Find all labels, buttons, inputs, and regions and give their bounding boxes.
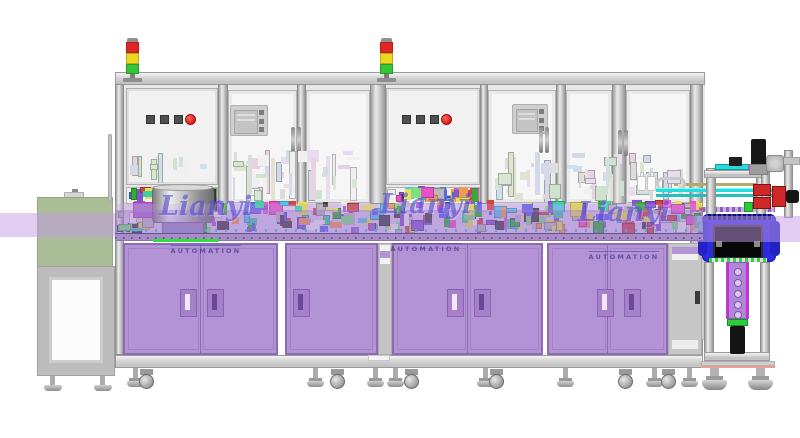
handle-slot	[185, 294, 190, 310]
component-block	[338, 165, 351, 170]
handle-slot	[452, 294, 457, 310]
cabinet-handle	[474, 289, 491, 317]
bottle	[647, 176, 656, 191]
panel-button	[160, 115, 169, 124]
gearbox-red	[753, 197, 771, 209]
component-block	[585, 178, 597, 184]
vision-bracket	[726, 262, 749, 319]
component-block	[326, 156, 330, 200]
component-block	[514, 193, 523, 200]
handle-slot	[629, 294, 634, 310]
conveyor-band-right	[693, 216, 800, 242]
tunnel-unit-sensor	[72, 189, 78, 192]
joint-stripe-purple	[380, 251, 390, 258]
component-block	[411, 188, 421, 198]
cable-conduit	[108, 134, 112, 202]
component-block	[472, 189, 478, 202]
component-block	[608, 167, 610, 183]
stack-light-yellow	[126, 53, 139, 64]
leveling-foot-base	[307, 381, 324, 387]
bracket-hole	[734, 279, 742, 287]
panel-button	[174, 115, 183, 124]
bracket-edge-right	[746, 263, 748, 318]
bottle-neck	[650, 172, 654, 177]
hmi-key	[259, 127, 264, 132]
side-stripe-bottom	[672, 340, 698, 349]
component-block	[579, 176, 582, 189]
bottle-neck	[640, 172, 644, 177]
component-block	[535, 152, 540, 195]
component-block	[498, 173, 513, 184]
stand-post-right	[760, 262, 770, 362]
leveling-foot-base	[367, 381, 384, 387]
left-stand-panel	[49, 277, 103, 363]
component-block	[343, 151, 354, 154]
stack-light-base	[123, 78, 142, 82]
frame-column	[370, 84, 386, 204]
green-block	[744, 202, 753, 212]
component-block	[258, 155, 269, 167]
motor-flange	[766, 155, 784, 172]
cabinet-handle	[293, 289, 310, 317]
component-block	[298, 151, 307, 161]
component-block	[620, 181, 624, 196]
cabinet-handle	[207, 289, 224, 317]
stand-post-left	[704, 262, 714, 362]
caster-wheel	[489, 374, 504, 389]
machinery-clutter	[387, 186, 479, 202]
component-block	[396, 195, 402, 202]
hmi-panel	[230, 105, 268, 136]
component-block	[233, 161, 244, 168]
handle-slot	[298, 294, 303, 310]
base-joint-notch	[368, 355, 390, 361]
component-block	[597, 186, 609, 195]
component-block	[549, 163, 558, 172]
coupler-cylinder	[786, 190, 799, 203]
hmi-key	[259, 110, 264, 115]
gearbox-red-side	[772, 186, 786, 207]
bracket-edge-left	[727, 263, 729, 318]
stack-light-green	[126, 64, 139, 74]
bracket-hole	[734, 311, 742, 319]
component-block	[131, 188, 137, 200]
leveling-foot-base	[681, 381, 698, 387]
automation-line-render: Lianyi AUTOMATION Lianyi AUTOMATION Lian…	[0, 0, 800, 438]
camera-mount-green	[727, 319, 748, 326]
component-block	[284, 184, 291, 188]
stack-light-red	[126, 42, 139, 53]
component-block	[419, 187, 433, 199]
green-status-line	[153, 239, 219, 242]
component-block	[520, 172, 531, 181]
station-foot-base	[702, 380, 727, 390]
enclosure-door	[386, 88, 480, 185]
leveling-foot-base	[94, 385, 112, 391]
machinery-clutter	[130, 152, 214, 183]
component-block	[531, 163, 534, 167]
bottle	[637, 176, 646, 191]
chamber-bottom-strip	[709, 258, 767, 262]
z-axis-motor	[751, 139, 766, 167]
component-block	[610, 174, 613, 201]
component-block	[444, 190, 447, 201]
caster-wheel	[330, 374, 345, 389]
conveyor-band-left	[0, 213, 115, 237]
panel-button	[430, 115, 439, 124]
hmi-screen	[234, 110, 258, 134]
cart-latch	[695, 291, 700, 304]
leveling-foot-base	[44, 385, 62, 391]
component-block	[643, 155, 651, 164]
station-foot-base	[748, 380, 773, 390]
cabinet-door-split	[200, 245, 201, 353]
caster-wheel	[661, 374, 676, 389]
component-block	[352, 179, 357, 188]
stack-light-base	[377, 78, 396, 82]
stack-light-yellow	[380, 53, 393, 64]
base-skirt	[115, 355, 703, 368]
panel-button	[402, 115, 411, 124]
caster-wheel	[139, 374, 154, 389]
bracket-hole	[734, 290, 742, 298]
bowl-feeder-rim	[153, 184, 213, 191]
component-block	[549, 184, 561, 199]
machinery-clutter	[232, 150, 364, 202]
hmi-key	[539, 118, 544, 123]
component-block	[271, 158, 275, 201]
cabinet-group	[285, 243, 378, 355]
handle-slot	[212, 294, 217, 310]
camera-cylinder	[730, 326, 745, 354]
component-block	[541, 163, 545, 174]
bracket-hole	[734, 301, 742, 309]
component-block	[387, 189, 396, 195]
component-block	[151, 159, 158, 180]
machinery-clutter	[570, 165, 610, 202]
cabinet-group	[123, 243, 278, 355]
component-block	[311, 158, 316, 200]
component-block	[577, 166, 582, 172]
component-block	[138, 156, 142, 177]
component-block	[276, 162, 282, 182]
panel-button	[416, 115, 425, 124]
component-block	[200, 164, 207, 169]
gearbox-red	[753, 184, 771, 196]
component-block	[248, 155, 252, 196]
leveling-foot-base	[557, 381, 574, 387]
estop-button	[441, 114, 452, 125]
cabinet-handle	[624, 289, 641, 317]
component-block	[322, 173, 327, 177]
component-block	[572, 153, 585, 158]
cabinet-handle	[447, 289, 464, 317]
estop-button	[185, 114, 196, 125]
frame-column	[218, 84, 228, 204]
leveling-foot-base	[387, 381, 404, 387]
cabinet-group	[392, 243, 543, 355]
hmi-key	[259, 119, 264, 124]
caster-wheel	[618, 374, 633, 389]
hmi-key	[539, 109, 544, 114]
component-block	[150, 164, 158, 170]
cabinet-door-split	[467, 245, 468, 353]
component-block	[280, 189, 285, 199]
handle-slot	[479, 294, 484, 310]
bracket-hole	[734, 268, 742, 276]
side-arm	[783, 157, 800, 165]
caster-wheel	[404, 374, 419, 389]
panel-button	[146, 115, 155, 124]
component-block	[333, 176, 336, 191]
component-block	[173, 158, 177, 171]
hmi-screen	[516, 109, 538, 132]
cabinet-joint-strip	[378, 243, 392, 355]
cabinet-handle	[180, 289, 197, 317]
component-block	[455, 197, 470, 202]
component-block	[184, 155, 189, 179]
component-block	[179, 157, 183, 166]
side-stripe-purple	[672, 247, 698, 254]
joint-stripe-white2	[380, 258, 390, 264]
component-block	[233, 177, 235, 200]
stack-light-red	[380, 42, 393, 53]
cabinet-handle	[597, 289, 614, 317]
component-block	[158, 153, 164, 183]
side-stripe-white	[672, 254, 698, 260]
component-block	[347, 157, 359, 160]
gripper-block	[729, 157, 742, 166]
handle-slot	[602, 294, 607, 310]
frame-column	[480, 84, 488, 204]
cabinet-group	[547, 243, 668, 355]
stack-light-green	[380, 64, 393, 74]
